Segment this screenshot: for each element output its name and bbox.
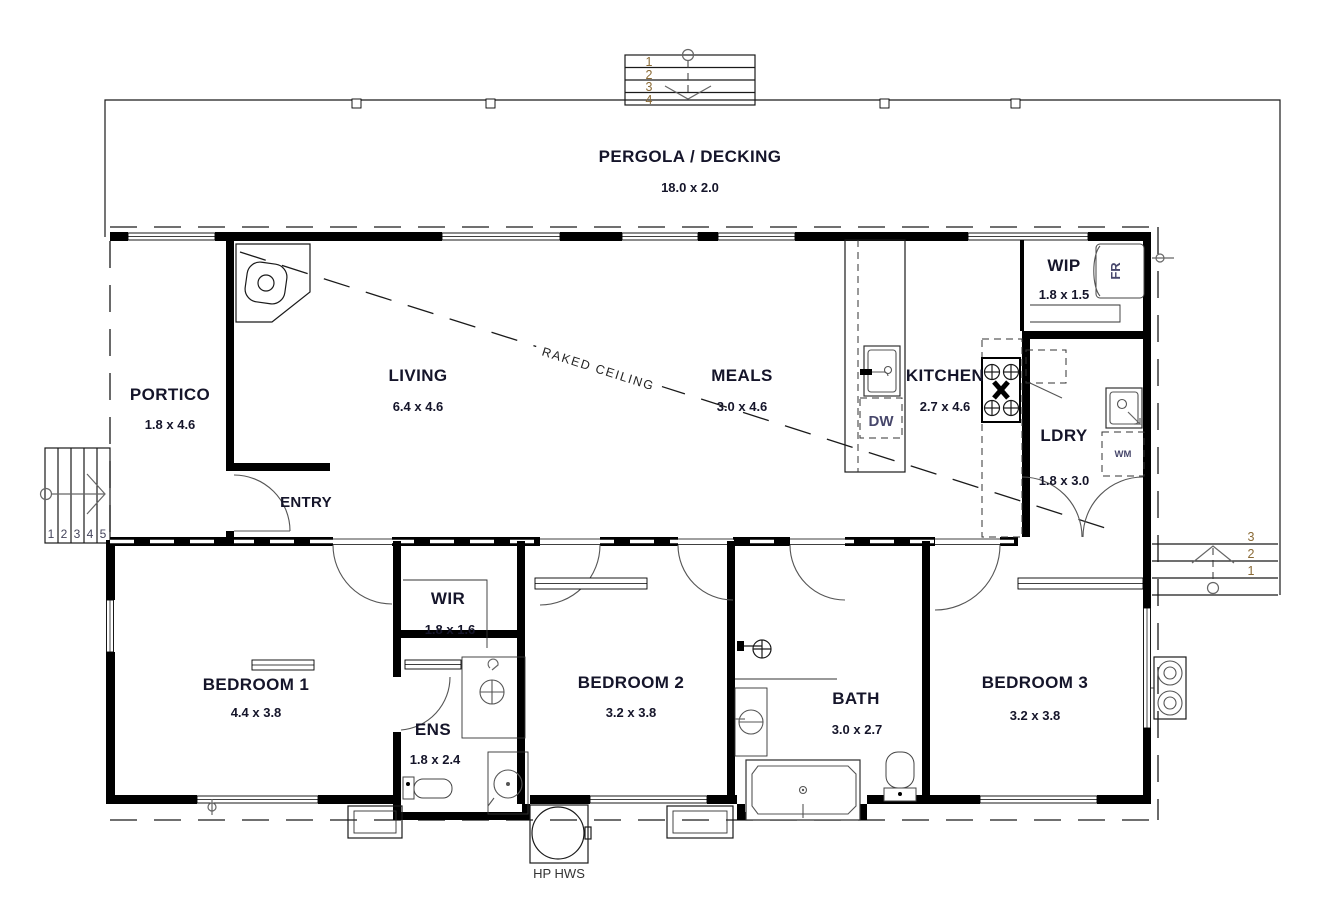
svg-text:LDRY: LDRY xyxy=(1040,426,1088,445)
bath-fixtures xyxy=(735,640,916,820)
svg-text:3.0 x 2.7: 3.0 x 2.7 xyxy=(832,722,883,737)
window xyxy=(197,796,318,803)
stair-number: 2 xyxy=(1248,547,1255,561)
room-label-pergola: PERGOLA / DECKING 18.0 x 2.0 xyxy=(599,147,782,195)
room-label-ldry: LDRY 1.8 x 3.0 xyxy=(1039,426,1090,488)
washing-machine-label: WM xyxy=(1115,449,1132,460)
pergola-post xyxy=(1011,99,1020,108)
svg-text:PORTICO: PORTICO xyxy=(130,385,210,404)
pergola-post xyxy=(352,99,361,108)
hot-water-unit: HP HWS xyxy=(530,805,591,881)
window xyxy=(980,796,1097,803)
walls-exterior xyxy=(106,232,1151,820)
stair-number: 2 xyxy=(61,527,68,541)
bedroom3-robe xyxy=(1018,578,1143,589)
svg-text:WIP: WIP xyxy=(1047,256,1080,275)
pergola-post xyxy=(880,99,889,108)
svg-text:BEDROOM 2: BEDROOM 2 xyxy=(578,673,685,692)
stair-number: 1 xyxy=(646,55,653,69)
bedroom2-door xyxy=(678,545,733,600)
svg-text:3.2 x 3.8: 3.2 x 3.8 xyxy=(606,705,657,720)
svg-text:ENTRY: ENTRY xyxy=(280,494,332,511)
ldry-cupboard xyxy=(1026,350,1066,383)
window xyxy=(442,233,560,240)
svg-text:PERGOLA / DECKING: PERGOLA / DECKING xyxy=(599,147,782,166)
room-label-bedroom3: BEDROOM 3 3.2 x 3.8 xyxy=(982,673,1089,723)
bedroom2-robe xyxy=(535,578,647,589)
ldry-cupboard-door xyxy=(1030,383,1062,398)
bath-vanity xyxy=(735,688,767,756)
svg-text:3.0 x 4.6: 3.0 x 4.6 xyxy=(717,399,768,414)
stair-number: 4 xyxy=(646,93,653,107)
dishwasher-label: DW xyxy=(869,413,895,430)
kitchen-island-bench: DW xyxy=(845,240,905,472)
window xyxy=(107,600,114,652)
svg-text:KITCHEN: KITCHEN xyxy=(906,366,984,385)
ens-tap-icon xyxy=(488,659,498,670)
hot-water-label: HP HWS xyxy=(533,866,585,881)
robes xyxy=(252,578,1143,670)
stair-number: 3 xyxy=(1248,530,1255,544)
exterior-boxes xyxy=(348,806,733,838)
raked-ceiling-label: RAKED CEILING xyxy=(540,345,656,394)
room-label-meals: MEALS 3.0 x 4.6 xyxy=(711,366,773,414)
window xyxy=(590,796,707,803)
ac-unit xyxy=(1151,657,1186,719)
stair-number: 1 xyxy=(48,527,55,541)
kitchen-wall-bench xyxy=(982,339,1022,537)
pergola-post xyxy=(486,99,495,108)
stair-start-marker xyxy=(41,489,52,500)
window xyxy=(128,233,215,240)
window xyxy=(718,233,795,240)
room-label-wip: WIP 1.8 x 1.5 xyxy=(1039,256,1090,302)
raked-ceiling-annotation: RAKED CEILING xyxy=(533,339,665,398)
svg-text:BATH: BATH xyxy=(832,689,880,708)
window xyxy=(968,233,1088,240)
svg-text:MEALS: MEALS xyxy=(711,366,773,385)
room-label-portico: PORTICO 1.8 x 4.6 xyxy=(130,385,210,432)
room-label-bath: BATH 3.0 x 2.7 xyxy=(832,689,883,737)
laundry-fixtures: WM xyxy=(1026,350,1144,476)
svg-text:2.7 x 4.6: 2.7 x 4.6 xyxy=(920,399,971,414)
room-label-entry: ENTRY xyxy=(280,494,332,511)
svg-text:1.8 x 3.0: 1.8 x 3.0 xyxy=(1039,473,1090,488)
stair-number: 3 xyxy=(74,527,81,541)
pergola-outline xyxy=(105,99,1280,595)
bath-toilet-icon xyxy=(884,752,916,801)
svg-text:6.4 x 4.6: 6.4 x 4.6 xyxy=(393,399,444,414)
room-label-living: LIVING 6.4 x 4.6 xyxy=(388,366,447,414)
stair-number: 3 xyxy=(646,80,653,94)
svg-text:3.2 x 3.8: 3.2 x 3.8 xyxy=(1010,708,1061,723)
wall-middle xyxy=(110,537,1150,546)
bedroom3-door xyxy=(935,545,1000,610)
stairs-right: 3 2 1 xyxy=(1152,530,1278,595)
svg-text:4.4 x 3.8: 4.4 x 3.8 xyxy=(231,705,282,720)
svg-text:LIVING: LIVING xyxy=(388,366,447,385)
bedroom1-door xyxy=(333,545,392,604)
room-label-bedroom2: BEDROOM 2 3.2 x 3.8 xyxy=(578,673,685,720)
laundry-tub-icon xyxy=(1106,388,1142,428)
wir-door xyxy=(540,545,600,605)
fridge-label: FR xyxy=(1108,262,1123,280)
stair-number: 4 xyxy=(87,527,94,541)
dishwasher-box: DW xyxy=(860,398,902,438)
stair-start-marker xyxy=(1208,583,1219,594)
room-label-kitchen: KITCHEN 2.7 x 4.6 xyxy=(906,366,984,414)
floor-plan-svg: 1 2 3 4 1 2 3 4 5 3 2 1 xyxy=(0,0,1342,918)
svg-text:1.8 x 4.6: 1.8 x 4.6 xyxy=(145,417,196,432)
room-label-wir: WIR 1.8 x 1.6 xyxy=(425,589,476,637)
stairs-top: 1 2 3 4 xyxy=(625,50,755,108)
svg-text:1.8 x 1.6: 1.8 x 1.6 xyxy=(425,622,476,637)
stairs-left: 1 2 3 4 5 xyxy=(41,448,111,543)
fireplace xyxy=(236,244,310,322)
roof-dashed-lines xyxy=(110,227,1158,820)
room-label-ens: ENS 1.8 x 2.4 xyxy=(410,720,461,767)
svg-text:ENS: ENS xyxy=(415,720,451,739)
svg-text:BEDROOM 3: BEDROOM 3 xyxy=(982,673,1089,692)
bath-shower-head-icon xyxy=(737,640,771,658)
pantry-shelf xyxy=(1030,305,1120,322)
sink-icon xyxy=(860,346,900,396)
svg-text:WIR: WIR xyxy=(431,589,465,608)
fridge-box: FR xyxy=(1094,244,1144,298)
cooktop-icon xyxy=(982,358,1020,422)
floor-plan-page: 1 2 3 4 1 2 3 4 5 3 2 1 xyxy=(0,0,1342,918)
ens-toilet-icon xyxy=(403,777,452,799)
ens-towel-rail xyxy=(405,660,461,669)
svg-text:1.8 x 2.4: 1.8 x 2.4 xyxy=(410,752,461,767)
svg-text:18.0 x 2.0: 18.0 x 2.0 xyxy=(661,180,719,195)
bathtub-icon xyxy=(746,760,860,820)
stair-number: 1 xyxy=(1248,564,1255,578)
svg-text:1.8 x 1.5: 1.8 x 1.5 xyxy=(1039,287,1090,302)
room-label-bedroom1: BEDROOM 1 4.4 x 3.8 xyxy=(203,675,310,720)
ldry-double-door-right xyxy=(1083,477,1143,537)
bedroom1-robe xyxy=(252,660,314,670)
washing-machine-box: WM xyxy=(1102,432,1144,476)
stair-number: 5 xyxy=(100,527,107,541)
svg-text:BEDROOM 1: BEDROOM 1 xyxy=(203,675,310,694)
window xyxy=(1144,608,1151,728)
bath-door xyxy=(790,545,845,600)
window xyxy=(622,233,698,240)
